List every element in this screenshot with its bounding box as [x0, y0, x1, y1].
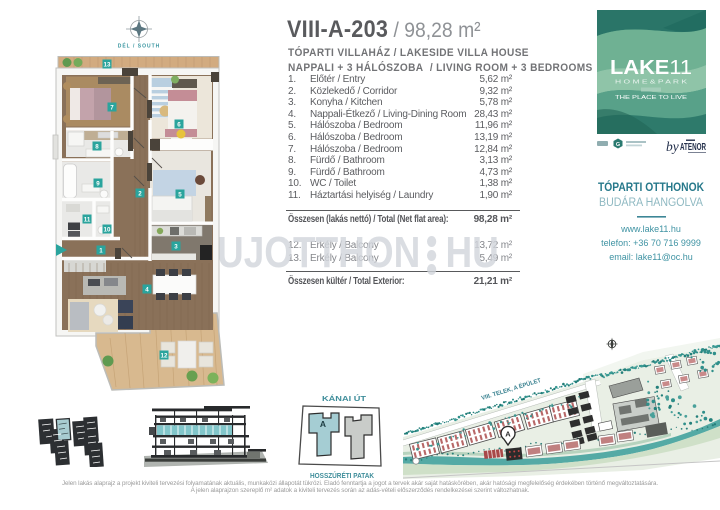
svg-text:11: 11 — [84, 216, 91, 223]
svg-text:13: 13 — [104, 61, 111, 68]
svg-text:G: G — [616, 142, 620, 148]
svg-text:BUDÁRA HANGOLVA: BUDÁRA HANGOLVA — [599, 196, 703, 209]
svg-text:H O M E & P A R K: H O M E & P A R K — [615, 80, 688, 86]
svg-text:A: A — [320, 419, 326, 429]
svg-text:HOSSZÚRÉTI PATAK: HOSSZÚRÉTI PATAK — [310, 471, 374, 480]
svg-text:by: by — [666, 139, 679, 154]
svg-text:1: 1 — [99, 247, 103, 254]
svg-text:10: 10 — [104, 226, 111, 233]
svg-text:LAKE11: LAKE11 — [610, 57, 692, 79]
svg-text:7: 7 — [110, 104, 114, 111]
svg-text:telefon: +36 70 716 9999: telefon: +36 70 716 9999 — [601, 238, 701, 248]
svg-text:4: 4 — [145, 286, 149, 293]
svg-text:email: lake11@oc.hu: email: lake11@oc.hu — [609, 252, 693, 262]
svg-text:ATENOR: ATENOR — [680, 141, 706, 153]
svg-text:2: 2 — [138, 190, 142, 197]
svg-text:3: 3 — [174, 243, 178, 250]
svg-text:DÉL / SOUTH: DÉL / SOUTH — [118, 42, 161, 50]
svg-text:6: 6 — [177, 121, 181, 128]
svg-text:8: 8 — [95, 143, 99, 150]
svg-text:A: A — [505, 430, 511, 439]
svg-text:THE PLACE TO LIVE: THE PLACE TO LIVE — [615, 95, 688, 101]
svg-text:9: 9 — [96, 180, 100, 187]
svg-text:TÓPARTI OTTHONOK: TÓPARTI OTTHONOK — [598, 179, 704, 194]
svg-text:5: 5 — [178, 191, 182, 198]
svg-text:KÁNAI ÚT: KÁNAI ÚT — [322, 394, 367, 403]
svg-text:www.lake11.hu: www.lake11.hu — [620, 224, 681, 234]
svg-text:12: 12 — [161, 352, 168, 359]
